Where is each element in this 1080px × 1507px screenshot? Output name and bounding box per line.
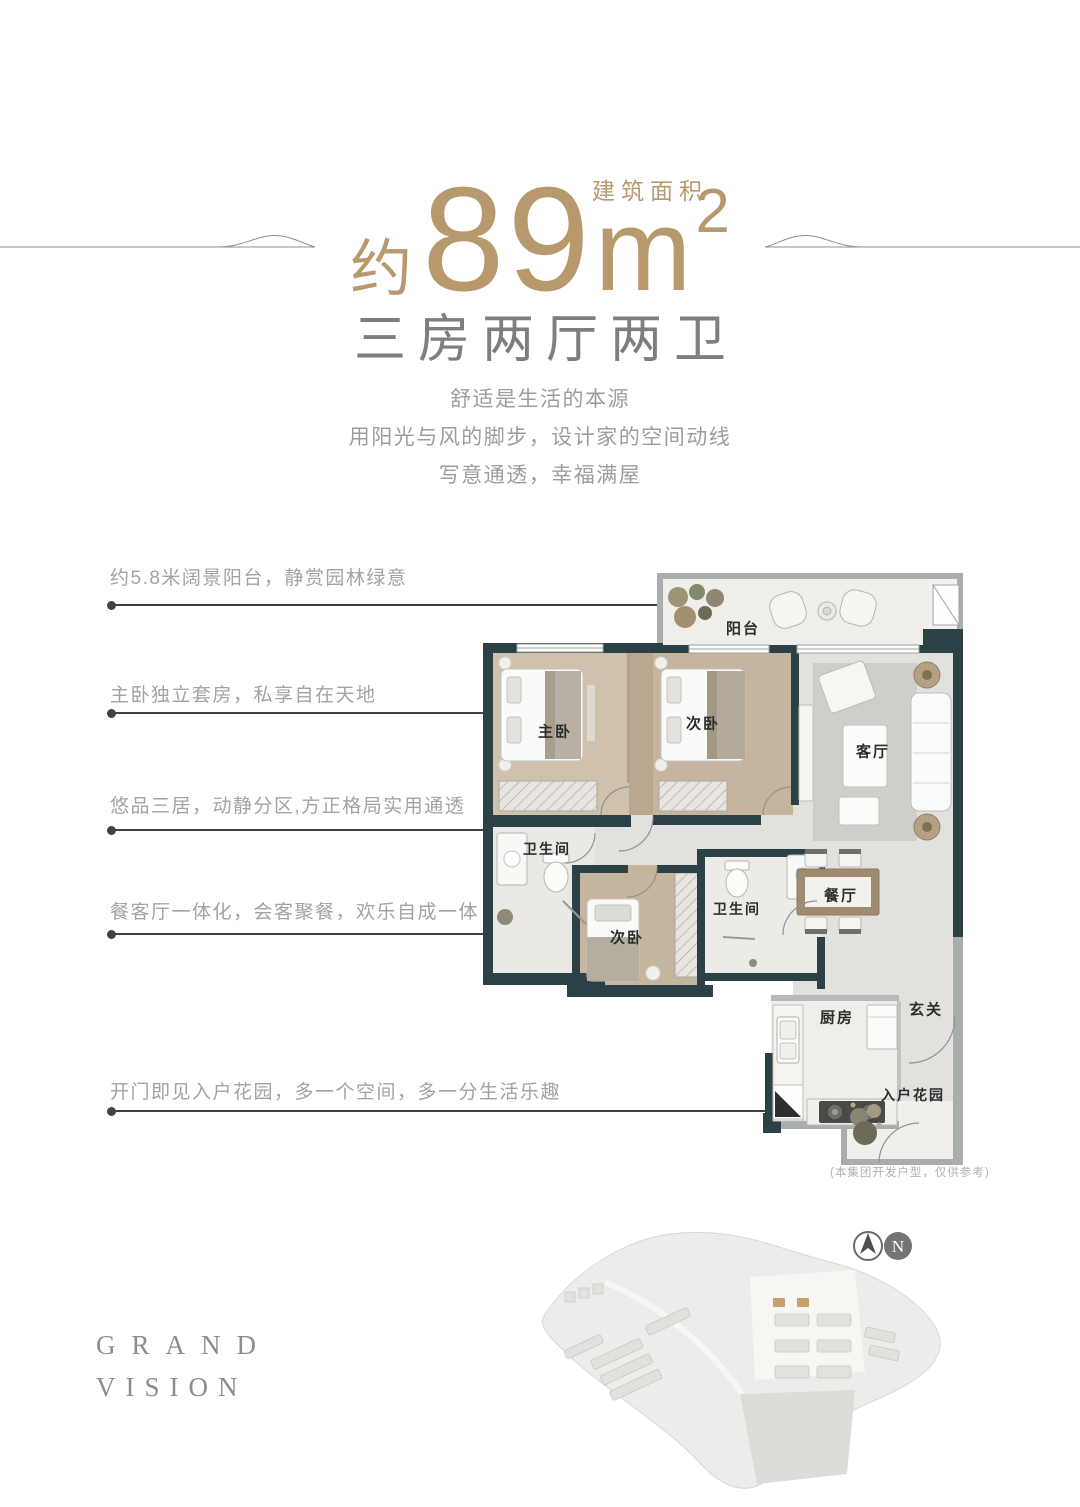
compass-n-letter: N: [892, 1237, 904, 1256]
sofa: [911, 693, 951, 811]
room-label-foyer: 玄关: [909, 999, 943, 1020]
room-label-bath2: 卫生间: [713, 899, 761, 919]
area-label: 建筑面积: [592, 172, 708, 206]
subtitle: 舒适是生活的本源 用阳光与风的脚步，设计家的空间动线 写意通透，幸福满屋: [0, 381, 1080, 495]
room-label-dining: 餐厅: [824, 885, 858, 906]
room-label-living: 客厅: [856, 741, 890, 762]
room-label-bedroom2: 次卧: [686, 713, 720, 734]
site-block: [740, 1390, 855, 1484]
room-label-entry-garden: 入户花园: [881, 1085, 945, 1105]
floor-plan: 阳台 主卧 次卧 客厅 卫生间 次卧 卫生间 餐厅 厨房 玄关 入户花园: [475, 565, 975, 1175]
callout-balcony: 约5.8米阔景阳台，静赏园林绿意: [110, 563, 407, 590]
room-label-balcony: 阳台: [726, 618, 760, 639]
room-label-master: 主卧: [538, 721, 572, 742]
poster-page: 建筑面积 约 89 m 2 三房两厅两卫 舒适是生活的本源 用阳光与风的脚步，设…: [0, 0, 1080, 1507]
subtitle-line: 用阳光与风的脚步，设计家的空间动线: [0, 419, 1080, 457]
callout-master-suite: 主卧独立套房，私享自在天地: [110, 680, 377, 707]
area-headline: 建筑面积 约 89 m 2: [0, 166, 1080, 300]
callout-three-rooms: 悠品三居，动静分区,方正格局实用通透: [110, 791, 465, 818]
brand-logo: GRAND VISION: [96, 1330, 272, 1403]
subtitle-line: 舒适是生活的本源: [0, 381, 1080, 419]
site-map: N: [535, 1222, 955, 1507]
room-label-kitchen: 厨房: [820, 1007, 854, 1028]
floor-plan-drawing: [475, 565, 975, 1175]
page-title: 三房两厅两卫: [0, 297, 1080, 372]
callout-dining-living: 餐客厅一体化，会客聚餐，欢乐自成一体: [110, 897, 479, 924]
plant: [497, 909, 513, 925]
toilet: [726, 869, 748, 897]
room-label-bath1: 卫生间: [523, 839, 571, 859]
toilet: [544, 862, 568, 892]
brand-line1: GRAND: [96, 1330, 272, 1361]
master-bed: [499, 657, 595, 771]
shower-drain: [749, 959, 757, 967]
area-superscript: 2: [695, 176, 729, 247]
subtitle-line: 写意通透，幸福满屋: [0, 457, 1080, 495]
fridge: [867, 1005, 897, 1049]
tv-console: [799, 705, 813, 801]
disclaimer-note: (本集团开发户型，仅供参考): [830, 1164, 990, 1180]
area-number: 89: [422, 166, 593, 314]
compass-icon: N: [854, 1232, 912, 1260]
area-value: 约 89 m 2: [0, 166, 1080, 300]
brand-line2: VISION: [96, 1372, 272, 1403]
callout-master-suite-line: [112, 712, 493, 714]
room-label-bedroom3: 次卧: [610, 927, 644, 948]
area-prefix: 约: [350, 218, 414, 308]
